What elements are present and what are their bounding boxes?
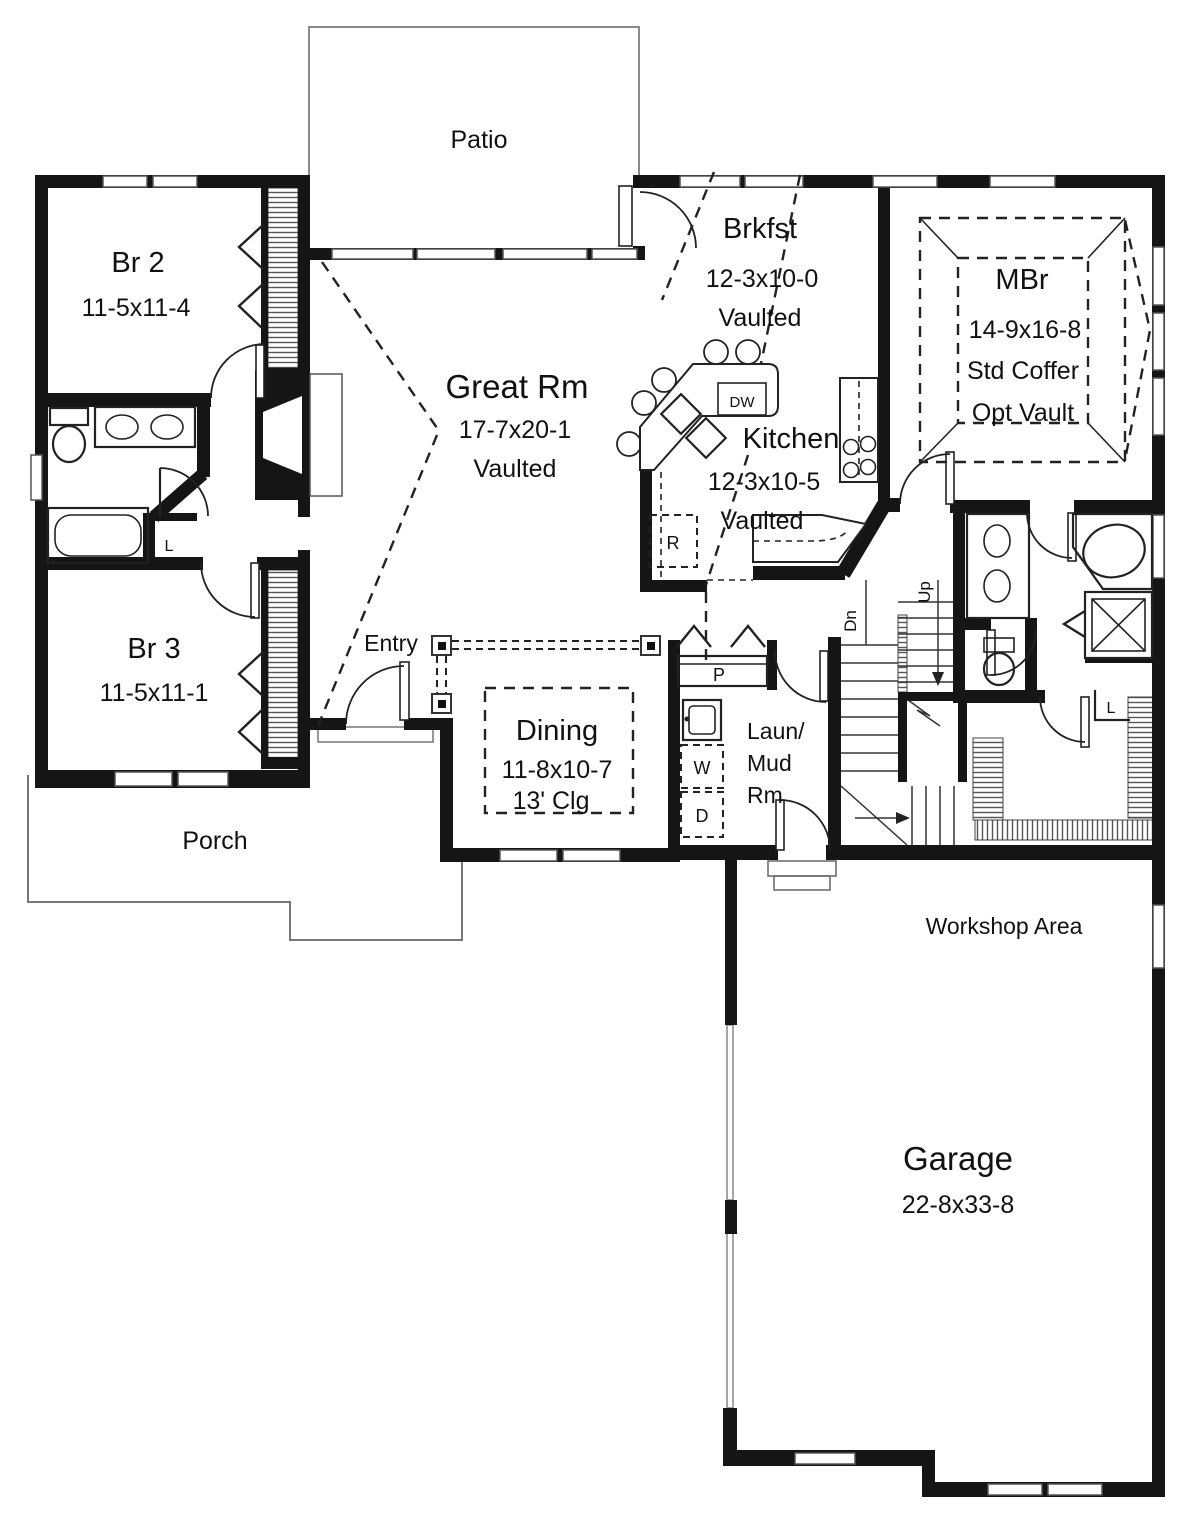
- room-ceiling-brkfst: Vaulted: [719, 304, 802, 332]
- room-label-greatrm: Great Rm: [445, 368, 588, 405]
- room-dims-garage: 22-8x33-8: [902, 1191, 1015, 1219]
- br3-closet-hatch: [268, 570, 298, 758]
- entry-door-leaf: [400, 662, 409, 720]
- room-dims-greatrm: 17-7x20-1: [459, 416, 572, 444]
- tag-washer: W: [694, 758, 711, 778]
- column: [641, 636, 660, 655]
- room-ceiling-kitchen: Vaulted: [721, 507, 804, 535]
- tag-stairs-down: Dn: [841, 610, 860, 632]
- room-dims-mbr: 14-9x16-8: [969, 316, 1082, 344]
- room-label-br3: Br 3: [127, 633, 180, 665]
- stair-rail-hatch: [898, 615, 907, 692]
- mbath-door-opening: [1030, 500, 1074, 513]
- room-label-laundry-1: Laun/: [747, 718, 805, 744]
- room-label-workshop: Workshop Area: [926, 913, 1083, 939]
- room-label-laundry-2: Mud: [747, 750, 792, 776]
- tag-linen-bath: L: [165, 538, 174, 555]
- column: [432, 694, 451, 713]
- room-label-laundry-3: Rm: [747, 782, 783, 808]
- room-coffer-mbr: Std Coffer: [967, 357, 1079, 385]
- room-dims-br2: 11-5x11-4: [82, 294, 191, 322]
- room-dims-dining: 11-8x10-7: [502, 756, 613, 784]
- room-dims-brkfst: 12-3x10-0: [706, 265, 819, 293]
- floor-plan-canvas: Patio Br 2 11-5x11-4 Great Rm 17-7x20-1 …: [0, 0, 1200, 1529]
- tag-dishwasher: DW: [730, 394, 756, 411]
- tag-dryer: D: [696, 806, 709, 826]
- room-vault-mbr: Opt Vault: [972, 399, 1074, 427]
- room-ceiling-dining: 13' Clg: [512, 787, 589, 815]
- room-label-entry: Entry: [364, 630, 418, 656]
- floor-plan-page: Patio Br 2 11-5x11-4 Great Rm 17-7x20-1 …: [0, 0, 1200, 1529]
- column: [432, 636, 451, 655]
- tag-linen-wic: L: [1107, 700, 1116, 717]
- wic-rod-bottom: [975, 820, 1155, 840]
- tag-pantry: P: [713, 665, 725, 685]
- patio-door-opening: [633, 188, 645, 246]
- room-label-garage: Garage: [903, 1140, 1013, 1177]
- room-ceiling-greatrm: Vaulted: [474, 455, 557, 483]
- room-label-kitchen: Kitchen: [743, 423, 840, 455]
- wic-rod-left: [973, 738, 1003, 820]
- room-label-br2: Br 2: [111, 247, 164, 279]
- room-dims-br3: 11-5x11-1: [100, 679, 209, 707]
- room-label-brkfst: Brkfst: [723, 213, 797, 245]
- room-label-mbr: MBr: [995, 264, 1049, 296]
- tag-stairs-up: Up: [915, 581, 934, 603]
- br2-closet-hatch: [268, 188, 298, 368]
- tag-refrigerator: R: [667, 533, 680, 553]
- room-label-dining: Dining: [516, 715, 598, 747]
- room-label-porch: Porch: [182, 827, 247, 855]
- room-label-patio: Patio: [451, 126, 508, 154]
- room-dims-kitchen: 12-3x10-5: [708, 468, 821, 496]
